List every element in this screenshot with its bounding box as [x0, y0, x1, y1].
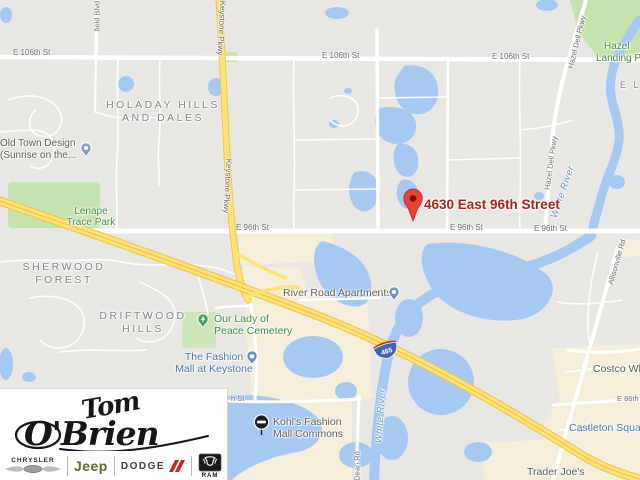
old-town-poi-pin-icon[interactable]: [80, 142, 92, 162]
park-label-hazel-landing: Hazel: [604, 42, 630, 52]
ram-brand: RAM: [198, 453, 222, 479]
park-label-lenape: Trace Park: [67, 218, 116, 228]
neighborhood-label-holaday-hills: HOLADAY HILLS: [106, 100, 220, 111]
street-label-e86th: E 86th St: [617, 395, 640, 403]
park-label-lenape: Lenape: [74, 207, 107, 217]
street-label-keystone-pkwy: Keystone Pkwy: [222, 158, 233, 213]
ram-wordmark: RAM: [202, 473, 219, 479]
jeep-wordmark: Jeep: [74, 458, 108, 474]
neighborhood-label-partial: E L: [620, 81, 640, 90]
street-label-field-blvd: field Blvd: [93, 1, 101, 31]
brand-divider: [191, 456, 192, 476]
poi-label-kohls: Kohl's Fashion: [273, 417, 342, 428]
logo-script-obrien: O'Brien: [24, 414, 159, 451]
chrysler-brand: CHRYSLER: [5, 458, 61, 475]
cemetery-poi-pin-icon[interactable]: [197, 313, 209, 333]
neighborhood-label-driftwood-hills: DRIFTWOOD: [99, 311, 186, 322]
street-label-partial-h-st: h St: [231, 395, 244, 403]
dodge-slashes-icon: [167, 460, 185, 472]
poi-label-fashion-mall: The Fashion: [185, 352, 243, 363]
brand-divider: [114, 456, 115, 476]
poi-label-fashion-mall: Mall at Keystone: [175, 364, 253, 375]
river-road-apartments-poi-pin-icon[interactable]: [388, 286, 400, 306]
neighborhood-label-holaday-hills: AND DALES: [122, 113, 204, 124]
dodge-brand: DODGE: [121, 460, 185, 472]
park-label-cemetery: Peace Cemetery: [214, 326, 292, 337]
kohls-logo-pin-icon[interactable]: [253, 414, 270, 441]
street-label-e96th: E 96th St: [236, 224, 269, 232]
map-canvas[interactable]: E 106th St E 106th St E 106th St field B…: [0, 0, 640, 480]
neighborhood-label-sherwood-forest: FOREST: [35, 275, 93, 286]
neighborhood-label-driftwood-hills: HILLS: [122, 324, 164, 335]
poi-label-river-road-apartments: River Road Apartments: [283, 288, 392, 299]
chrysler-wings-icon: [5, 464, 61, 474]
poi-label-old-town-design: (Sunrise on the...: [0, 151, 76, 161]
street-label-e106th: E 106th St: [492, 53, 529, 61]
street-label-dean-rd: Dean Rd: [353, 451, 361, 480]
street-label-e106th: E 106th St: [322, 52, 359, 60]
poi-label-trader-joes: Trader Joe's: [527, 467, 585, 478]
brand-logos-row: CHRYSLER Jeep DODGE: [0, 451, 227, 480]
park-label-cemetery: Our Lady of: [214, 314, 269, 325]
poi-label-castleton-square: Castleton Squar: [569, 423, 640, 434]
brand-divider: [67, 456, 68, 476]
tom-obrien-script-logo: Tom O'Brien: [0, 389, 226, 451]
destination-address-label: 4630 East 96th Street: [424, 198, 560, 212]
street-label-e106th: E 106th St: [13, 49, 50, 57]
poi-label-kohls: Mall Commons: [273, 429, 343, 440]
poi-label-costco: Costco Wh: [593, 364, 640, 375]
street-label-e96th: E 96th St: [450, 224, 483, 232]
destination-pin-marker[interactable]: [400, 187, 426, 228]
street-label-keystone-pkwy: Keystone Pkwy: [216, 0, 227, 55]
dealership-logo: Tom O'Brien CHRYSLER Jeep DODGE: [0, 388, 228, 480]
street-label-e96th: E 96th St: [534, 225, 567, 233]
neighborhood-label-sherwood-forest: SHERWOOD: [23, 262, 106, 273]
poi-label-old-town-design: Old Town Design: [0, 139, 75, 149]
park-label-hazel-landing: Landing Par: [596, 54, 640, 64]
ram-head-icon: [198, 453, 222, 472]
dodge-wordmark: DODGE: [121, 461, 165, 472]
fashion-mall-poi-pin-icon[interactable]: [246, 350, 258, 370]
